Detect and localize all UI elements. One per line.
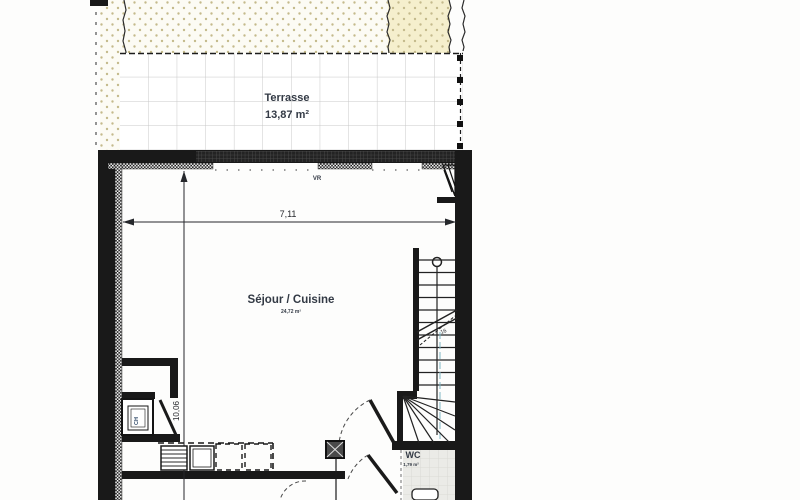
floor-plan-drawing: Terrasse 13,87 m² Séjour / Cuisine 24,72… [0, 0, 800, 500]
wall-kitchen-bottom [113, 471, 345, 479]
wall-stair-left [413, 248, 419, 391]
duct-cap [437, 197, 455, 203]
duct [443, 165, 455, 196]
boundary-post [90, 0, 108, 6]
appliance-slot [216, 444, 242, 470]
appliance-slot [245, 444, 271, 470]
toilet [412, 489, 438, 500]
staircase [403, 258, 457, 444]
water-heater-closet [122, 399, 176, 435]
wc-area: 1,79 m² [403, 462, 419, 467]
wc-door-swing [348, 455, 368, 479]
dimension-horizontal [123, 219, 456, 226]
wc-door-leaf [368, 455, 397, 493]
living-room-door-swing [339, 400, 370, 443]
wc-label: WC [406, 450, 421, 460]
kitchen-sink [161, 446, 187, 470]
living-room-door-leaf [370, 400, 394, 443]
column [326, 441, 344, 500]
roller-shutter-label: VR [313, 176, 322, 182]
terrace-area: 13,87 m² [265, 109, 309, 121]
depth-dimension-label: 10,06 [172, 400, 181, 421]
wall-hall-left [397, 391, 403, 445]
living-room-area: 24,72 m² [281, 309, 301, 315]
water-heater-label: CH [134, 417, 140, 425]
wall-left [98, 150, 115, 500]
kitchen-sink-drainer [190, 446, 214, 470]
wall-wc-top [392, 441, 472, 450]
stair-winders [403, 396, 455, 443]
terrace-label: Terrasse [264, 92, 309, 104]
floor-plan-canvas: Terrasse 13,87 m² Séjour / Cuisine 24,72… [0, 0, 800, 500]
width-dimension-label: 7,11 [280, 209, 297, 219]
wall-closet-top [98, 358, 178, 366]
bottom-door-swing [280, 481, 306, 500]
kitchen-counter [158, 443, 273, 471]
living-room-label: Séjour / Cuisine [248, 294, 335, 306]
wall-closet-right [170, 358, 178, 398]
stair-newel-post [433, 258, 442, 267]
walls [98, 150, 472, 500]
